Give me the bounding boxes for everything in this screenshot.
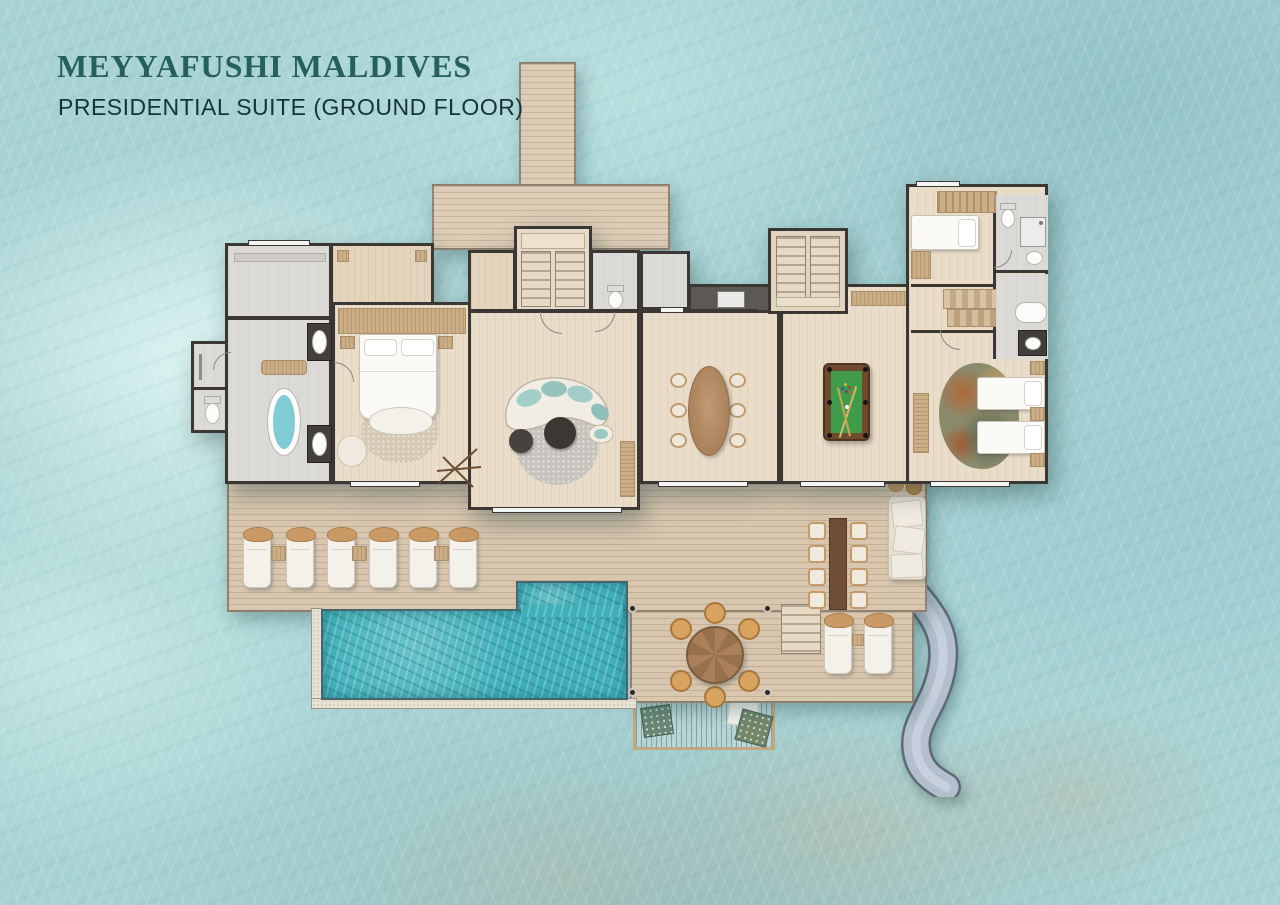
bed-pillow <box>1024 425 1042 450</box>
sun-lounger <box>409 530 437 588</box>
outdoor-lounge-sofa <box>888 496 926 580</box>
console-table <box>620 441 635 497</box>
dining-chair <box>729 403 746 418</box>
toilet-bowl <box>205 403 220 424</box>
vanity-counter <box>1018 330 1047 356</box>
dining-room <box>640 310 780 484</box>
wardrobe <box>337 250 349 262</box>
dining-table-6-seats <box>688 366 730 456</box>
billiard-felt <box>831 371 862 433</box>
deck-steps <box>781 604 821 654</box>
toilet-bowl <box>608 291 623 309</box>
bed-pillow <box>401 339 434 356</box>
sun-lounger <box>327 530 355 588</box>
outdoor-dining-chair <box>808 522 826 540</box>
kitchen-counter <box>688 284 780 312</box>
stair-flight <box>521 251 551 307</box>
lounger-seam <box>290 549 310 550</box>
entry-stairs <box>514 226 592 312</box>
lounger-seam <box>868 635 888 636</box>
lounger-side-table <box>434 546 449 561</box>
twin-bed <box>977 377 1045 410</box>
vanity-counter <box>307 425 332 463</box>
lounger-seam <box>373 549 393 550</box>
sun-lounger <box>369 530 397 588</box>
lounger-headrest <box>369 527 399 542</box>
outdoor-dining-chair <box>808 591 826 609</box>
coffee-table <box>544 417 576 449</box>
deck-post <box>628 604 637 613</box>
window <box>930 481 1010 487</box>
billiard-rack <box>844 383 847 386</box>
lounger-seam <box>828 635 848 636</box>
shower-drain <box>1039 221 1043 225</box>
games-room <box>780 284 910 484</box>
luggage-bench <box>913 393 929 453</box>
deck-dining-chair <box>704 686 726 708</box>
dining-chair <box>670 403 687 418</box>
bed-pillow <box>958 219 976 247</box>
floorplan-poster: MEYYAFUSHI MALDIVES PRESIDENTIAL SUITE (… <box>0 0 1280 905</box>
interior-wall <box>993 270 1045 273</box>
stair-flight <box>555 251 585 307</box>
window <box>658 481 748 487</box>
master-bathroom <box>225 317 332 484</box>
foot-sofa <box>369 407 433 435</box>
vanity-basin <box>1025 337 1041 350</box>
sideboard <box>851 291 907 306</box>
window <box>916 181 960 187</box>
window <box>800 481 885 487</box>
deck-post <box>628 688 637 697</box>
nightstand <box>438 336 453 349</box>
foyer-closet <box>468 250 516 312</box>
staircase <box>768 228 848 314</box>
sofa-cushion <box>892 525 925 555</box>
swimming-pool <box>321 609 628 700</box>
billiard-table <box>823 363 870 441</box>
daybed-cushions <box>947 309 997 327</box>
bed-pillow <box>1024 381 1042 406</box>
vanity-counter <box>307 323 332 361</box>
lounger-seam <box>331 549 351 550</box>
powder-room <box>590 250 640 312</box>
outdoor-dining-table <box>829 518 847 610</box>
dining-chair <box>670 433 687 448</box>
pool-water-seam <box>521 605 623 617</box>
round-deck-dining-table <box>686 626 744 684</box>
bed-pillow <box>364 339 397 356</box>
stair-flight <box>810 236 840 298</box>
nightstand <box>340 336 355 349</box>
coffee-table <box>509 429 533 453</box>
lounger-headrest <box>243 527 273 542</box>
lounger-side-table <box>852 634 864 646</box>
sun-lounger <box>449 530 477 588</box>
lounger-side-table <box>271 546 286 561</box>
right-wing <box>906 184 1048 484</box>
interior-wall <box>911 284 995 287</box>
kitchen-pantry <box>640 251 690 310</box>
wardrobe <box>415 250 427 262</box>
lounger-seam <box>413 549 433 550</box>
deck-lounger <box>864 616 892 674</box>
deck-dining-chair <box>670 618 692 640</box>
sun-lounger <box>243 530 271 588</box>
nightstand <box>1030 361 1045 375</box>
headboard-wall <box>338 308 466 334</box>
outdoor-dining-chair <box>850 522 868 540</box>
window <box>660 307 684 313</box>
nightstand <box>1030 407 1045 421</box>
twin-bed <box>977 421 1045 454</box>
sun-lounger <box>286 530 314 588</box>
jetty-walkway <box>519 62 576 188</box>
lounger-headrest <box>286 527 316 542</box>
lounger-headrest <box>409 527 439 542</box>
lounger-seam <box>453 549 473 550</box>
daybed-cushions <box>943 289 997 309</box>
driftwood-decor <box>435 439 483 495</box>
outdoor-dining-chair <box>850 591 868 609</box>
deck-lounger <box>824 616 852 674</box>
deck-dining-chair <box>738 618 760 640</box>
page-subtitle: PRESIDENTIAL SUITE (GROUND FLOOR) <box>58 94 523 121</box>
luggage-bench <box>911 251 931 279</box>
deck-post <box>763 604 772 613</box>
master-dressing-room <box>225 243 332 319</box>
dining-chair <box>729 433 746 448</box>
shower <box>1020 217 1046 247</box>
deck-dining-chair <box>738 670 760 692</box>
lounger-headrest <box>864 613 894 628</box>
bathtub-water <box>273 395 295 449</box>
single-bed <box>911 215 979 250</box>
vanity-basin <box>312 432 327 456</box>
window <box>350 481 420 487</box>
deck-dining-chair <box>704 602 726 624</box>
kitchen-sink <box>717 291 745 308</box>
page-title: MEYYAFUSHI MALDIVES <box>57 48 472 85</box>
wardrobe <box>937 191 997 213</box>
lounger-seam <box>247 549 267 550</box>
family-bathroom <box>996 274 1048 359</box>
dining-chair <box>729 373 746 388</box>
stair-flight <box>776 236 806 298</box>
walk-in-closet <box>330 243 434 305</box>
lounger-side-table <box>352 546 367 561</box>
nightstand <box>1030 453 1045 467</box>
net-cushion <box>640 704 674 738</box>
vanity-basin <box>312 330 327 354</box>
stair-landing <box>521 233 585 249</box>
outdoor-dining-chair <box>850 545 868 563</box>
lounger-headrest <box>824 613 854 628</box>
duvet-fold <box>360 371 436 372</box>
living-room <box>468 310 640 510</box>
sofa-cushion <box>890 553 923 579</box>
bedroom-chair <box>337 435 367 467</box>
shower-rail <box>199 354 202 380</box>
window <box>248 240 310 246</box>
bathroom-sink <box>1026 251 1043 265</box>
outdoor-dining-chair <box>850 568 868 586</box>
deck-post <box>763 688 772 697</box>
freestanding-bathtub <box>267 388 301 456</box>
bath-bench <box>261 360 307 375</box>
dining-chair <box>670 373 687 388</box>
closet-rail <box>234 253 326 262</box>
toilet-bowl <box>1001 209 1015 228</box>
lounger-headrest <box>449 527 479 542</box>
lounger-headrest <box>327 527 357 542</box>
outdoor-dining-chair <box>808 568 826 586</box>
deck-dining-chair <box>670 670 692 692</box>
table-pocket <box>827 367 832 372</box>
window <box>492 507 622 513</box>
stair-landing <box>776 297 840 307</box>
bathtub <box>1015 302 1047 323</box>
outdoor-dining-chair <box>808 545 826 563</box>
